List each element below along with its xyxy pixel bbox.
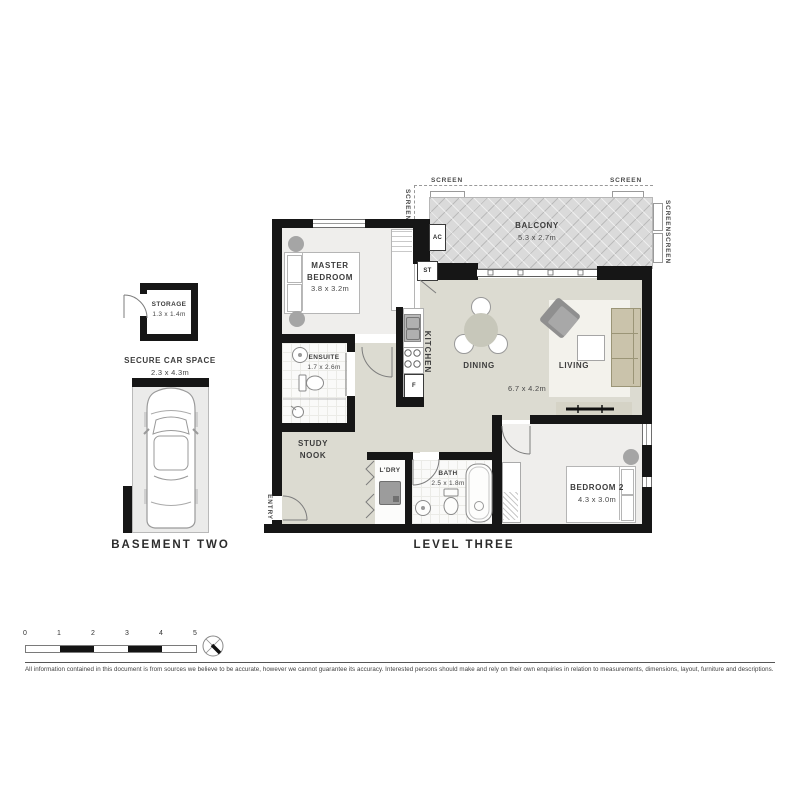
balcony-floor	[429, 197, 653, 269]
master-side-table-2	[289, 311, 305, 327]
bath-floor	[412, 460, 492, 524]
balcony-sliding-door	[477, 269, 597, 277]
scale-tick-0: 0	[19, 630, 31, 637]
compass-needle	[212, 645, 220, 653]
car-space-wall	[123, 486, 132, 533]
compass-cross-line	[206, 639, 220, 653]
screen-label-right-2: SCREEN	[663, 223, 673, 273]
wall	[396, 397, 424, 407]
storage-wall	[191, 283, 198, 341]
master-pillow-2	[287, 284, 302, 312]
storage-name: STORAGE	[152, 300, 187, 309]
sofa-cushion-line-1	[612, 333, 638, 334]
scale-tick-4: 4	[155, 630, 167, 637]
coffee-table	[577, 335, 605, 361]
bedroom2-pillow-1	[621, 469, 634, 495]
screen-label-top-2: SCREEN	[601, 176, 651, 185]
st-label: ST	[423, 268, 431, 274]
scale-bar	[25, 645, 197, 653]
footer-divider	[25, 662, 775, 663]
car-space-dims: 2.3 x 4.3m	[151, 368, 189, 379]
car-space-wall	[132, 378, 209, 387]
ensuite-floor	[282, 343, 347, 423]
study-entry-floor	[282, 432, 375, 524]
tv-unit	[556, 402, 632, 415]
scale-segment	[128, 646, 162, 652]
storage-wall	[140, 316, 147, 341]
compass	[203, 636, 223, 656]
scale-segment	[94, 646, 128, 652]
screen-panel-right-1	[653, 203, 663, 231]
entry-label: ENTRY	[265, 482, 275, 532]
st-box: ST	[417, 261, 438, 281]
master-bed-line	[302, 253, 303, 311]
wall	[413, 219, 430, 264]
floorplan-page: SCREEN SCREEN SCREEN SCREEN SCREEN BALCO…	[0, 0, 800, 800]
sofa-backrest-line	[633, 309, 634, 384]
car-space-name: SECURE CAR SPACE	[124, 355, 216, 367]
ac-label: AC	[433, 235, 442, 241]
storage-wall	[140, 283, 147, 294]
wall	[272, 334, 355, 343]
master-wardrobe-shelves	[392, 230, 412, 252]
fridge-label: F	[412, 383, 416, 389]
bedroom2-window-2	[642, 477, 652, 487]
compass-cross-line	[206, 639, 220, 653]
screen-dashed-line-left	[414, 185, 415, 219]
bedroom2-window-1	[642, 424, 652, 445]
wall	[437, 263, 478, 280]
car-space-area	[132, 387, 209, 533]
scale-tick-1: 1	[53, 630, 65, 637]
fridge-box: F	[404, 374, 424, 398]
level-heading: LEVEL THREE	[394, 539, 534, 551]
scale-segment	[60, 646, 94, 652]
storage-door-arc	[124, 295, 147, 318]
bedroom2-pillow-2	[621, 495, 634, 521]
wall	[396, 307, 403, 407]
scale-segment	[162, 646, 196, 652]
basement-heading: BASEMENT TWO	[100, 539, 241, 551]
sink-bowl-2	[406, 329, 420, 340]
screen-dashed-line-top	[414, 185, 653, 186]
wall	[367, 452, 413, 460]
scale-tick-2: 2	[87, 630, 99, 637]
car-space-label: SECURE CAR SPACE 2.3 x 4.3m	[110, 355, 230, 378]
wall	[405, 460, 412, 524]
compass-circle	[203, 636, 223, 656]
sofa-cushion-line-2	[612, 358, 638, 359]
wall	[272, 219, 282, 496]
scale-segment	[26, 646, 60, 652]
wall	[264, 524, 652, 533]
master-window	[313, 219, 365, 228]
bedroom2-wardrobe-hatch	[503, 492, 518, 520]
storage-wall	[140, 283, 198, 290]
wall	[492, 415, 502, 524]
wall	[272, 423, 355, 432]
sofa	[611, 308, 641, 387]
scale-tick-5: 5	[189, 630, 201, 637]
storage-door	[124, 295, 147, 318]
sink-bowl-1	[406, 317, 420, 329]
bedroom2-side-table	[623, 449, 639, 465]
ac-box: AC	[429, 224, 446, 251]
master-side-table-1	[288, 236, 304, 252]
storage-label: STORAGE 1.3 x 1.4m	[145, 300, 193, 320]
scale-tick-3: 3	[121, 630, 133, 637]
wall	[530, 415, 652, 424]
storage-wall	[140, 334, 198, 341]
stove	[403, 347, 424, 374]
living-floor-lower	[420, 420, 495, 452]
disclaimer-text: All information contained in this docume…	[25, 666, 785, 673]
wall	[439, 452, 495, 460]
screen-label-top-1: SCREEN	[422, 176, 472, 185]
screen-panel-right-2	[653, 233, 663, 263]
kitchen-label: KITCHEN	[423, 327, 433, 377]
washing-machine-detail	[393, 496, 399, 502]
master-pillow-1	[287, 255, 302, 283]
storage-dims: 1.3 x 1.4m	[152, 310, 185, 319]
wall	[347, 334, 355, 352]
bedroom2-bed-line	[619, 467, 620, 520]
